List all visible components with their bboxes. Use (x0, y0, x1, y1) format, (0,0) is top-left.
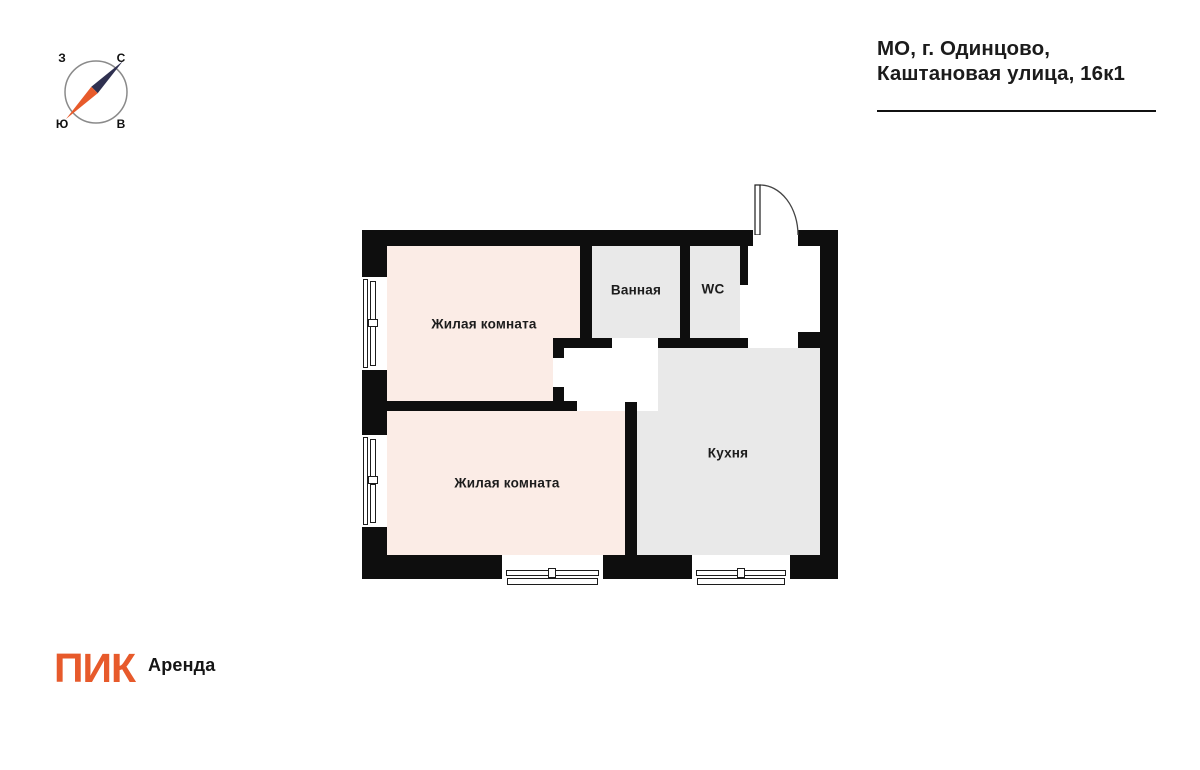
address-line-2: Каштановая улица, 16к1 (877, 61, 1167, 86)
window-frame (548, 568, 556, 578)
compass-label-north: С (113, 52, 129, 64)
window-frame (506, 570, 550, 576)
wall-segment (387, 401, 577, 411)
wall-segment (603, 555, 692, 579)
wall-segment (798, 332, 820, 348)
wall-segment (362, 370, 387, 435)
address-line-1: МО, г. Одинцово, (877, 36, 1167, 61)
room-label-living-2: Жилая комната (454, 476, 559, 491)
door-swing-arc (760, 185, 798, 235)
window-frame (696, 570, 739, 576)
wall-segment (553, 348, 564, 358)
compass-label-west: З (54, 52, 70, 64)
window-frame (370, 326, 376, 366)
wall-segment (658, 338, 748, 348)
window-sill (507, 578, 598, 585)
entrance-door (742, 180, 802, 235)
wall-segment (580, 246, 592, 348)
window-frame (368, 476, 378, 484)
room-kitchen-area (658, 348, 820, 411)
window-frame (370, 484, 376, 523)
window-frame (368, 319, 378, 327)
floor-plan: Жилая комната Ванная WC Кухня Жилая комн… (362, 230, 838, 579)
wall-segment (680, 246, 690, 348)
address-divider (877, 110, 1156, 112)
wall-segment (362, 230, 753, 246)
wall-segment (625, 402, 637, 557)
window-frame (743, 570, 786, 576)
pik-logo: ПИК (54, 648, 135, 689)
window-frame (737, 568, 745, 578)
room-kitchen-area (637, 411, 820, 555)
window-frame (370, 439, 376, 478)
pik-logo-product-label: Аренда (148, 656, 216, 674)
door-leaf (755, 185, 760, 235)
room-label-wc: WC (702, 282, 725, 297)
page: { "header": { "address_line1": "МО, г. О… (0, 0, 1200, 770)
wall-segment (553, 338, 612, 348)
compass-needle-north (91, 61, 123, 93)
room-label-living-1: Жилая комната (431, 317, 536, 332)
room-label-bathroom: Ванная (611, 283, 661, 298)
address-block: МО, г. Одинцово, Каштановая улица, 16к1 (877, 36, 1167, 86)
compass-label-east: В (113, 118, 129, 130)
wall-segment (790, 555, 838, 579)
window-frame (370, 281, 376, 320)
room-label-kitchen: Кухня (708, 446, 748, 461)
wall-segment (820, 230, 838, 579)
wall-segment (740, 246, 748, 285)
window-sill (697, 578, 785, 585)
room-living-1-area (387, 338, 553, 401)
window-frame (554, 570, 599, 576)
compass-needle-south (66, 87, 98, 119)
wall-segment (553, 387, 564, 401)
wall-segment (362, 230, 387, 277)
compass-label-south: Ю (54, 118, 70, 130)
wall-segment (362, 527, 387, 579)
